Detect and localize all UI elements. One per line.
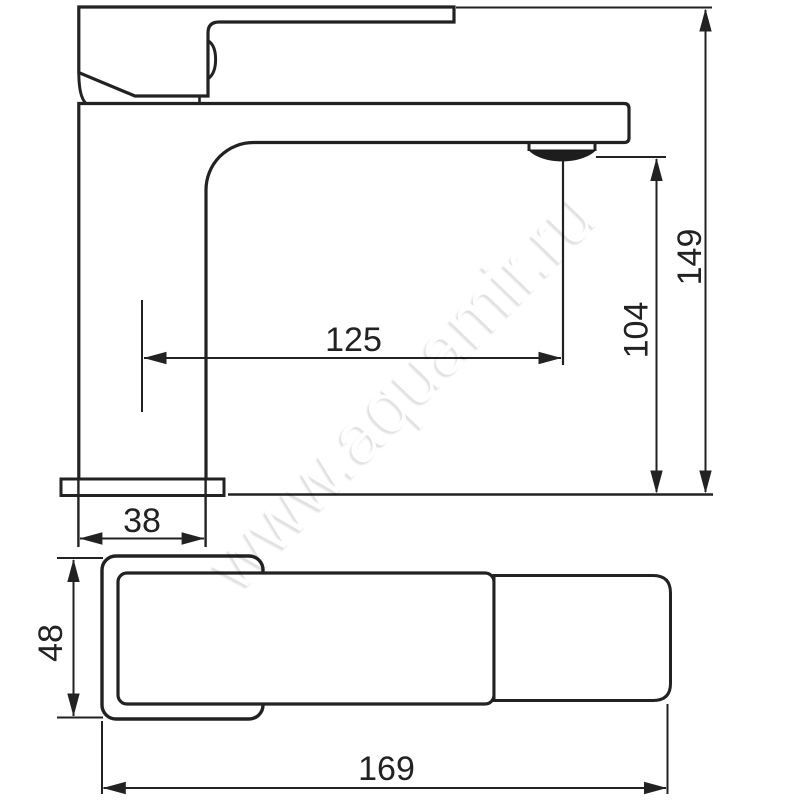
svg-text:169: 169: [358, 750, 415, 788]
svg-text:125: 125: [325, 321, 382, 359]
svg-text:104: 104: [618, 302, 656, 359]
svg-text:48: 48: [32, 624, 70, 662]
svg-text:149: 149: [671, 229, 709, 286]
svg-text:38: 38: [123, 502, 161, 540]
